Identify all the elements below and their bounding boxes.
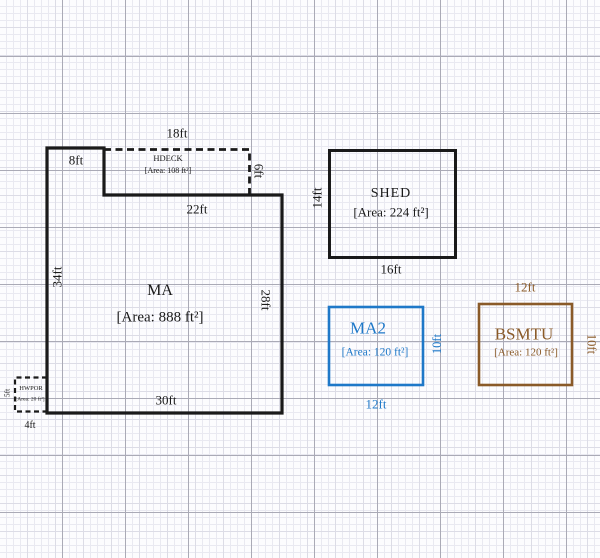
bsmtu-name-label: BSMTU — [495, 326, 554, 343]
sketch-canvas: 18ft 8ft HDECK [Area: 108 ft²] 6ft 22ft … — [0, 0, 600, 558]
hwpor-dim-bottom: 4ft — [24, 421, 35, 431]
bsmtu-outline — [479, 304, 572, 385]
ma-dim-right: 28ft — [260, 290, 273, 311]
hwpor-outline-dashed — [15, 378, 47, 412]
bsmtu-dim-right: 10ft — [585, 334, 598, 354]
ma-dim-notch-bottom: 22ft — [187, 203, 208, 216]
ma2-dim-bottom: 12ft — [366, 398, 387, 411]
ma-dim-top-left: 8ft — [69, 154, 83, 167]
ma-outline — [47, 148, 282, 413]
bsmtu-area-label: [Area: 120 ft²] — [494, 348, 558, 359]
shed-dim-left: 14ft — [311, 188, 324, 209]
shed-name-label: SHED — [371, 187, 412, 201]
hwpor-name-label: HWPOR — [19, 386, 42, 393]
ma2-area-label: [Area: 120 ft²] — [342, 347, 409, 359]
bsmtu-dim-top: 12ft — [515, 281, 536, 294]
ma-dim-bottom: 30ft — [156, 394, 177, 407]
hdeck-name-label: HDECK — [153, 154, 182, 163]
hwpor-dim-left: 5ft — [3, 389, 11, 397]
ma2-dim-right: 10ft — [431, 334, 444, 354]
sketch-shapes-layer — [0, 0, 600, 558]
shed-area-label: [Area: 224 ft²] — [353, 206, 428, 219]
hwpor-area-label: [Area: 20 ft²] — [15, 397, 44, 403]
ma-dim-left: 34ft — [51, 267, 64, 288]
ma-name-label: MA — [147, 283, 173, 299]
ma2-name-label: MA2 — [350, 320, 386, 337]
hdeck-dim-top: 18ft — [167, 127, 188, 140]
hdeck-area-label: [Area: 108 ft²] — [145, 167, 191, 175]
shed-dim-bottom: 16ft — [381, 263, 402, 276]
ma-area-label: [Area: 888 ft²] — [117, 311, 204, 326]
hdeck-dim-right: 6ft — [253, 164, 266, 178]
